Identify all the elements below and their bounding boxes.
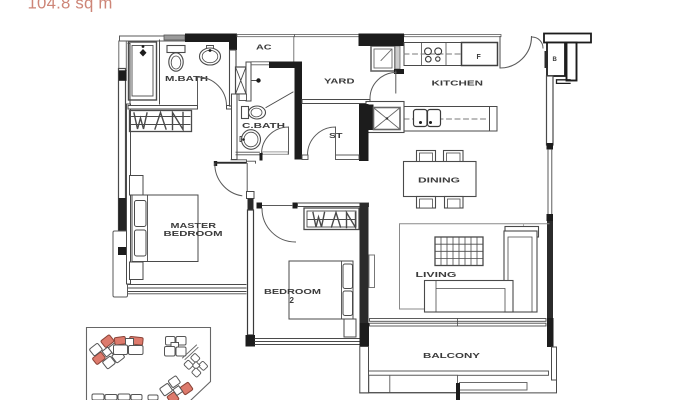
svg-text:AC: AC [256,43,272,52]
svg-text:DINING: DINING [418,176,461,185]
svg-text:BEDROOM: BEDROOM [264,287,321,296]
svg-text:B: B [553,57,558,63]
svg-text:KITCHEN: KITCHEN [432,79,484,88]
svg-text:2: 2 [290,296,295,305]
svg-text:104.8 sq m: 104.8 sq m [28,0,113,13]
svg-text:BEDROOM: BEDROOM [164,229,223,238]
svg-text:ST: ST [329,131,343,140]
svg-text:BALCONY: BALCONY [423,351,480,360]
svg-text:YARD: YARD [324,77,355,86]
svg-text:F: F [477,54,482,61]
svg-text:M.BATH: M.BATH [165,74,208,83]
svg-text:LIVING: LIVING [416,270,458,279]
